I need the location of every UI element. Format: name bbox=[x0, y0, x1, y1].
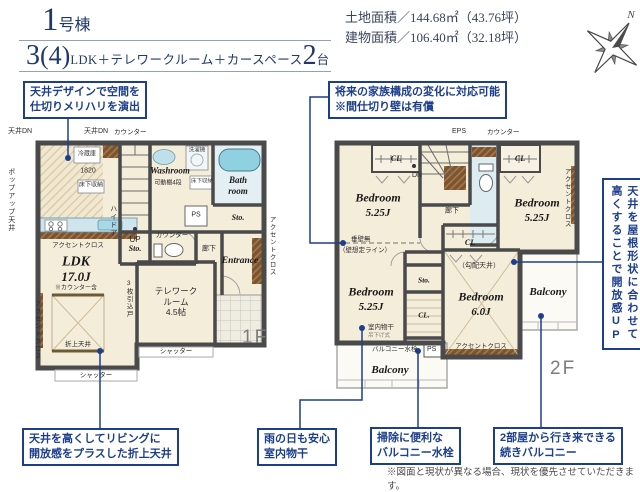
popup-ceiling-label: ポップアップ天井 bbox=[6, 168, 15, 232]
accent-cloth-label: アクセントクロス bbox=[562, 168, 570, 228]
counter-label: カウンター bbox=[114, 129, 147, 137]
callout-ceiling-design: 天井デザインで空間を 仕切りメリハリを演出 bbox=[23, 81, 147, 119]
callout-coffered: 天井を高くしてリビングに 開放感をプラスした折上天井 bbox=[22, 428, 179, 466]
balcony-right-label: Balcony bbox=[529, 286, 566, 300]
compass-main-star bbox=[587, 23, 636, 73]
counter-label: カウンター bbox=[156, 232, 189, 240]
room-bedroom3-size: 5.25J bbox=[525, 212, 550, 226]
layout-summary: 3 (4) LDK＋テレワークルーム＋カースペース 2 台 bbox=[26, 40, 329, 72]
layout-count: 2 bbox=[303, 40, 317, 72]
storage-label: Sto. bbox=[418, 275, 430, 284]
washbasin-icon bbox=[153, 150, 175, 165]
floor-storage-label: 床下収納 bbox=[79, 182, 103, 190]
layout-text: LDK＋テレワークルーム＋カースペース bbox=[70, 49, 302, 68]
callout-connected-balcony: 2部屋から行き来できる 続きバルコニー bbox=[493, 427, 623, 465]
building-unit: 号棟 bbox=[59, 11, 91, 35]
ceiling-dn-label: 天井DN bbox=[84, 128, 108, 137]
room-bedroom3-label: Bedroom bbox=[514, 196, 559, 211]
closet-label: CL. bbox=[418, 310, 429, 319]
fridge-label: 冷蔵庫 bbox=[78, 151, 96, 159]
room-bedroom2-label: Bedroom bbox=[348, 285, 393, 300]
room-entrance-label: Entrance bbox=[222, 256, 258, 268]
ceiling-dn-label: 天井DN bbox=[8, 128, 32, 137]
room-ldk-size: 17.0J bbox=[61, 269, 90, 285]
accent-cloth-label: アクセントクロス bbox=[267, 216, 275, 276]
layout-paren: (4) bbox=[40, 41, 70, 71]
indoor-drying-label: 室内物干 bbox=[368, 324, 394, 332]
room-bedroom1-label: Bedroom bbox=[355, 191, 400, 206]
eps-label: EPS bbox=[452, 128, 466, 137]
callout-balcony-faucet: 掃除に便利な バルコニー水栓 bbox=[370, 427, 461, 465]
no-hanging-wall-label: 垂壁無 bbox=[351, 236, 371, 244]
floor2-tag: 2F bbox=[550, 358, 576, 380]
toilet2-floor bbox=[470, 145, 498, 245]
room-bedroom4-label: Bedroom bbox=[458, 290, 503, 305]
assumed-wall-label: （壁想定ライン） bbox=[339, 247, 391, 255]
balcony-faucet-label: バルコニー水栓 bbox=[372, 346, 417, 354]
closet-label: CL bbox=[391, 154, 401, 164]
toilet-tank-icon bbox=[154, 244, 162, 257]
ps-label: PS bbox=[191, 212, 200, 221]
compass-rose: N bbox=[587, 9, 636, 73]
callout-family-change: 将来の家族構成の変化に対応可能 ※間仕切り壁は有償 bbox=[328, 81, 507, 119]
accent-cloth-label: アクセントクロス bbox=[455, 343, 507, 351]
floorplan-canvas: N bbox=[0, 0, 640, 480]
indoor-drying-sub-label: 吊下げ式 bbox=[368, 333, 390, 340]
disclaimer-note: ※図面と現状が異なる場合、現状を優先させていただきます。 bbox=[387, 464, 640, 492]
room-bedroom2-size: 5.25J bbox=[359, 301, 384, 315]
accent-cloth-label: アクセントクロス bbox=[32, 300, 40, 360]
storage-label: Sto. bbox=[129, 244, 142, 254]
layout-count-unit: 台 bbox=[317, 49, 330, 68]
callout-indoor-drying: 雨の日も安心 室内物干 bbox=[257, 428, 337, 466]
sliding-door-label: 3枚引込戸 bbox=[124, 280, 132, 318]
high-door-label: ハイドア bbox=[108, 205, 117, 237]
shutter-label: シャッター bbox=[80, 372, 113, 380]
room-bath-label: Bath room bbox=[228, 175, 248, 198]
hallway-label: 廊下 bbox=[445, 208, 459, 217]
coffered-ceiling-label: 折上天井 bbox=[65, 341, 91, 349]
washer-label: 洗濯機 bbox=[189, 148, 206, 155]
bathtub-icon bbox=[219, 149, 260, 171]
layout-num: 3 bbox=[26, 40, 40, 72]
toilet2-tank-icon bbox=[479, 164, 493, 171]
room-bedroom4-size: 6.0J bbox=[471, 306, 490, 320]
shutter-label: シャッター bbox=[160, 348, 193, 356]
closet-label: CL bbox=[515, 154, 525, 164]
toilet-bowl-icon bbox=[165, 244, 183, 257]
counter-label: カウンター bbox=[487, 129, 520, 137]
callout-roof-ceiling: 天井を屋根形状に合わせて 高くすることで開放感UP bbox=[602, 178, 640, 350]
room-telework-label: テレワーク ルーム 4.5帖 bbox=[155, 286, 198, 318]
compass-north-label: N bbox=[626, 9, 635, 21]
building-title: 1 号棟 bbox=[42, 2, 91, 39]
floor1-tag: 1F bbox=[242, 327, 268, 349]
ldk-note: ※カウンター含 bbox=[55, 285, 97, 293]
stair-dn-marker bbox=[412, 164, 416, 168]
balcony-left-label: Balcony bbox=[371, 364, 408, 378]
closet-label: CL bbox=[465, 238, 475, 248]
hallway-label: 廊下 bbox=[202, 246, 216, 255]
ps-label: PS bbox=[427, 346, 436, 355]
room-bedroom1-size: 5.25J bbox=[366, 207, 391, 221]
dimension-label: 1820 bbox=[80, 168, 96, 177]
floor-storage-label: 床下収納 bbox=[191, 179, 213, 186]
storage-label: Sto. bbox=[232, 213, 245, 223]
building-number: 1 bbox=[42, 2, 59, 39]
shelf-label: 可動棚4段 bbox=[154, 180, 181, 188]
floorplan-flyer: { "header": { "building_number": "1", "b… bbox=[0, 0, 640, 480]
toilet2-bowl-icon bbox=[480, 175, 493, 192]
sloped-ceiling-label: （勾配天井） bbox=[458, 263, 500, 272]
accent-cloth-label: アクセントクロス bbox=[52, 242, 104, 250]
room-washroom-label: Washroom bbox=[150, 165, 190, 176]
closet-wood bbox=[103, 145, 119, 158]
stove-icon bbox=[45, 220, 67, 231]
toilet-counter-wood bbox=[472, 147, 496, 157]
stair-newel-wood bbox=[444, 166, 466, 190]
stairs-dn-label: DN bbox=[412, 172, 422, 181]
